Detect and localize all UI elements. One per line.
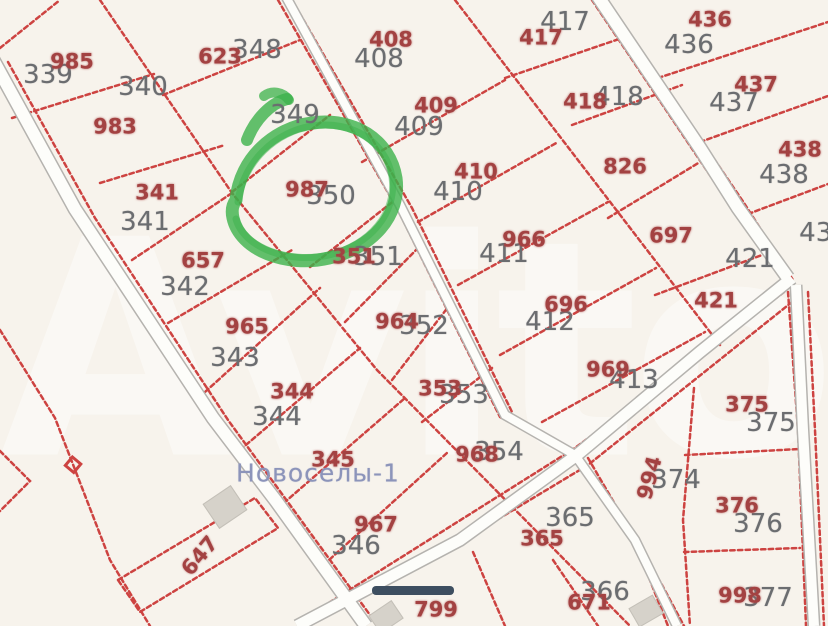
parcel-label: 417 — [519, 28, 563, 49]
parcel-label: 437 — [734, 75, 778, 96]
parcel-label: 439 — [799, 220, 828, 246]
parcel-label: 826 — [603, 157, 647, 178]
parcel-label: 345 — [311, 450, 355, 471]
parcel-label: 342 — [160, 274, 210, 300]
parcel-label: 376 — [715, 496, 759, 517]
parcel-label: 966 — [502, 230, 546, 251]
parcel-label: 436 — [664, 32, 714, 58]
parcel-label: 696 — [544, 295, 588, 316]
parcel-label: 421 — [694, 291, 738, 312]
parcel-label: 964 — [375, 312, 419, 333]
labels-layer: Новоселы-1 33934034834934134234334434635… — [0, 0, 828, 626]
parcel-label: 349 — [270, 102, 320, 128]
parcel-label: 436 — [688, 10, 732, 31]
parcel-label: 341 — [120, 209, 170, 235]
parcel-label: 375 — [725, 395, 769, 416]
parcel-label: 340 — [118, 74, 168, 100]
parcel-label: 623 — [198, 47, 242, 68]
parcel-label: 965 — [225, 317, 269, 338]
parcel-label: 410 — [454, 162, 498, 183]
parcel-label: 438 — [778, 140, 822, 161]
parcel-label: 983 — [93, 117, 137, 138]
parcel-label: 346 — [331, 533, 381, 559]
map-canvas[interactable]: Avito — [0, 0, 828, 626]
parcel-label: 799 — [414, 600, 458, 621]
parcel-label: 697 — [649, 226, 693, 247]
parcel-label: 341 — [135, 183, 179, 204]
parcel-label: 418 — [563, 92, 607, 113]
parcel-label: 647 — [178, 532, 222, 579]
parcel-label: 985 — [50, 52, 94, 73]
parcel-label: 343 — [210, 345, 260, 371]
dark-label-bar — [372, 586, 454, 595]
parcel-label: 998 — [718, 586, 762, 607]
parcel-label: 365 — [520, 529, 564, 550]
parcel-label: 344 — [270, 382, 314, 403]
parcel-label: 409 — [414, 96, 458, 117]
parcel-label: 353 — [418, 379, 462, 400]
parcel-label: 421 — [725, 246, 775, 272]
parcel-label: 409 — [394, 114, 444, 140]
parcel-label: 671 — [567, 593, 611, 614]
parcel-label: 969 — [586, 360, 630, 381]
parcel-label: 438 — [759, 162, 809, 188]
parcel-label: 967 — [354, 515, 398, 536]
parcel-label: 351 — [332, 247, 376, 268]
parcel-label: 987 — [285, 180, 329, 201]
parcel-label: 408 — [369, 30, 413, 51]
parcel-label: 657 — [181, 251, 225, 272]
parcel-label: 968 — [455, 445, 499, 466]
parcel-label: 344 — [252, 404, 302, 430]
